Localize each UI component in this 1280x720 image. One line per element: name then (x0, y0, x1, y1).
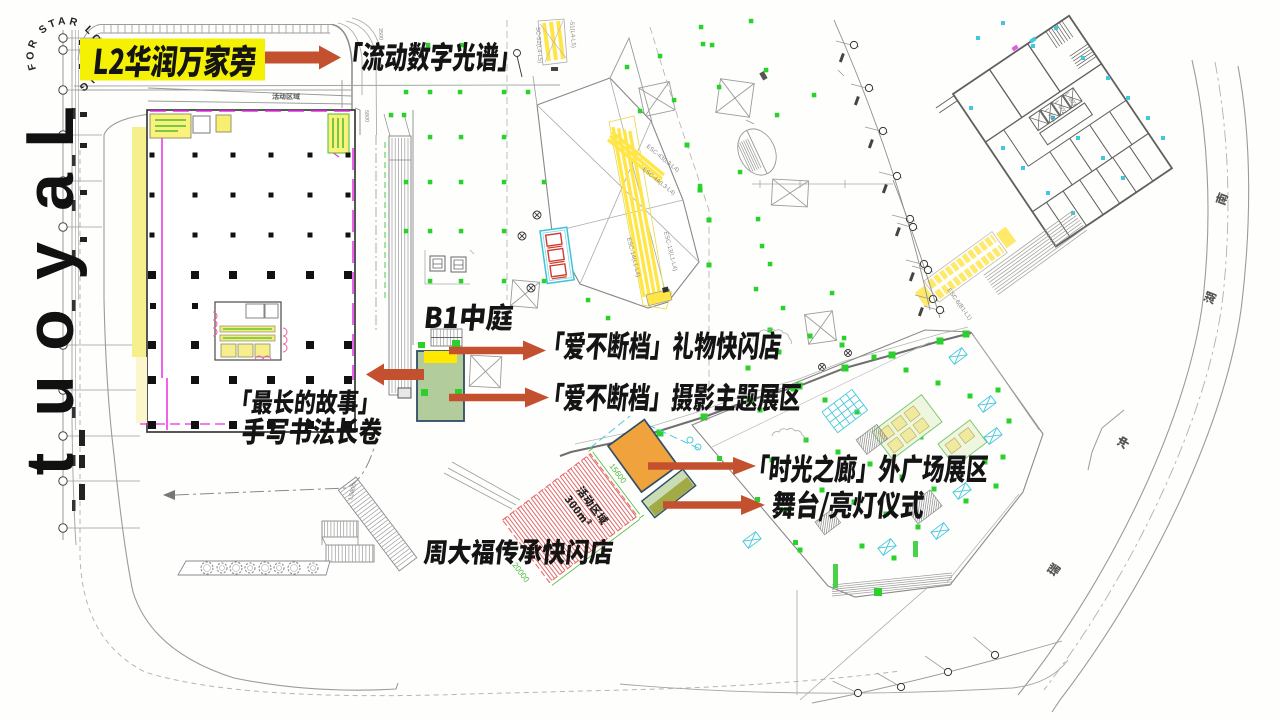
svg-text:5800: 5800 (363, 110, 369, 122)
svg-text:3500: 3500 (377, 28, 383, 40)
svg-text:a: a (12, 172, 88, 211)
svg-text:L: L (12, 106, 88, 148)
svg-text:o: o (12, 309, 88, 351)
svg-text:u: u (12, 375, 88, 417)
svg-text:y: y (12, 242, 88, 280)
svg-text:t: t (12, 453, 88, 476)
